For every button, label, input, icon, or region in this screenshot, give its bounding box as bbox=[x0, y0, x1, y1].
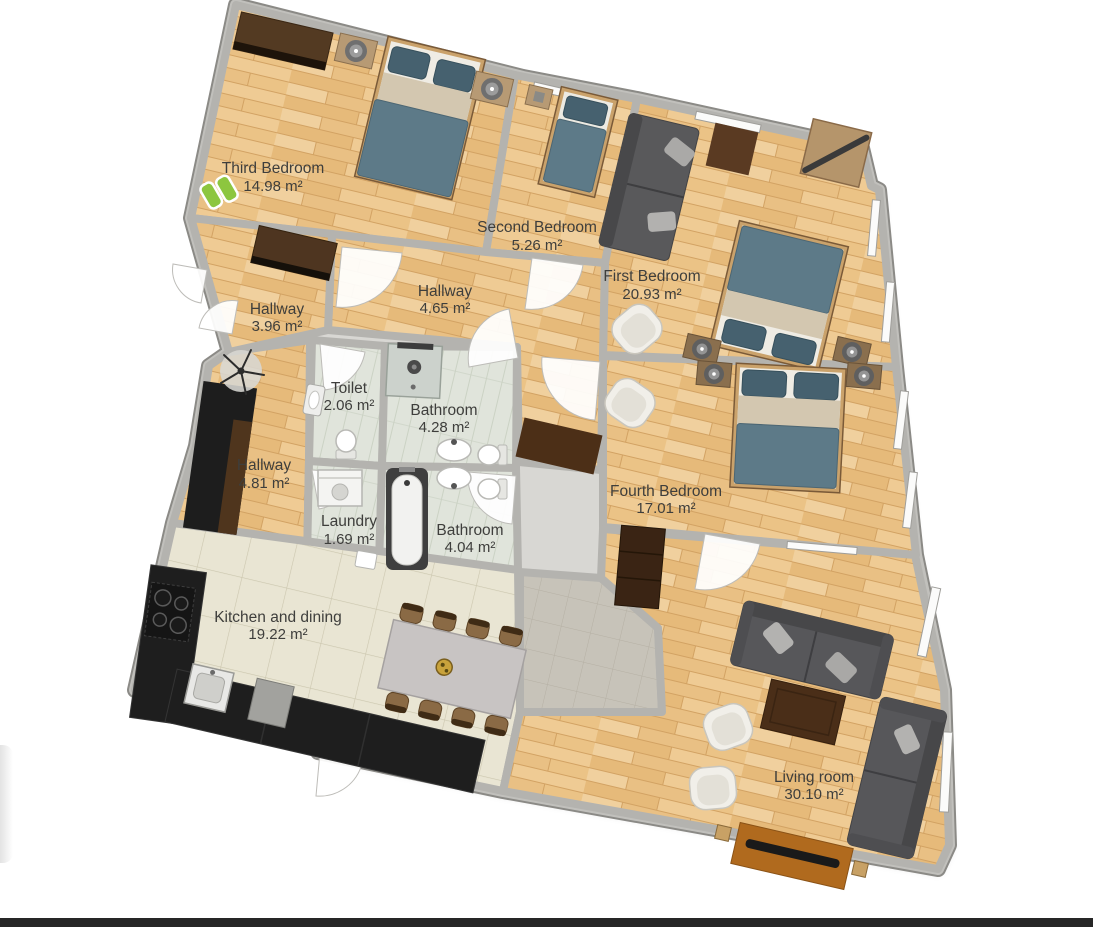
label-laundry-area: 1.69 m² bbox=[324, 531, 375, 548]
double-bed bbox=[730, 363, 846, 493]
label-first-bedroom-name: First Bedroom bbox=[603, 268, 700, 285]
label-hallway-left-area: 3.96 m² bbox=[252, 318, 303, 335]
bottom-bar bbox=[0, 918, 1093, 927]
wardrobe bbox=[615, 525, 666, 609]
speaker bbox=[715, 825, 732, 842]
floorplan-drawing: Third Bedroom 14.98 m² Second Bedroom 5.… bbox=[0, 0, 1093, 927]
bathtub bbox=[386, 467, 428, 570]
label-fourth-bedroom-area: 17.01 m² bbox=[636, 500, 695, 517]
label-living-room-area: 30.10 m² bbox=[784, 786, 843, 803]
toilet bbox=[336, 430, 356, 459]
label-first-bedroom-area: 20.93 m² bbox=[622, 286, 681, 303]
label-bathroom-lower-name: Bathroom bbox=[436, 522, 503, 539]
label-hallway-lower-name: Hallway bbox=[237, 457, 292, 474]
label-second-bedroom-area: 5.26 m² bbox=[512, 237, 563, 254]
floorplan-canvas: Third Bedroom 14.98 m² Second Bedroom 5.… bbox=[0, 0, 1093, 927]
label-hallway-left-name: Hallway bbox=[250, 301, 305, 318]
label-third-bedroom-area: 14.98 m² bbox=[243, 178, 302, 195]
label-toilet-name: Toilet bbox=[331, 380, 368, 397]
label-hallway-top-name: Hallway bbox=[418, 283, 473, 300]
label-bathroom-lower-area: 4.04 m² bbox=[445, 539, 496, 556]
sink bbox=[437, 439, 471, 461]
nightstand bbox=[846, 363, 882, 390]
label-living-room-name: Living room bbox=[774, 769, 854, 786]
label-kitchen-name: Kitchen and dining bbox=[214, 609, 342, 626]
label-hallway-top-area: 4.65 m² bbox=[420, 300, 471, 317]
cooktop bbox=[144, 582, 195, 642]
shower bbox=[386, 342, 443, 399]
left-panel-edge bbox=[0, 745, 13, 863]
label-hallway-lower-area: 4.81 m² bbox=[239, 475, 290, 492]
nightstand bbox=[696, 361, 732, 388]
sink bbox=[437, 467, 471, 489]
label-fourth-bedroom-name: Fourth Bedroom bbox=[610, 483, 722, 500]
toilet bbox=[478, 479, 507, 499]
door-swing bbox=[173, 264, 207, 303]
label-third-bedroom-name: Third Bedroom bbox=[222, 160, 325, 177]
washing-machine bbox=[318, 470, 362, 506]
label-laundry-name: Laundry bbox=[321, 513, 377, 530]
label-bathroom-upper-area: 4.28 m² bbox=[419, 419, 470, 436]
kitchen-sink bbox=[184, 664, 234, 712]
scale bbox=[355, 550, 377, 569]
speaker bbox=[852, 861, 869, 878]
toilet bbox=[478, 445, 507, 465]
label-toilet-area: 2.06 m² bbox=[324, 397, 375, 414]
label-kitchen-area: 19.22 m² bbox=[248, 626, 307, 643]
label-bathroom-upper-name: Bathroom bbox=[410, 402, 477, 419]
label-second-bedroom-name: Second Bedroom bbox=[477, 219, 597, 236]
door-swing bbox=[199, 301, 238, 334]
armchair bbox=[688, 765, 737, 811]
